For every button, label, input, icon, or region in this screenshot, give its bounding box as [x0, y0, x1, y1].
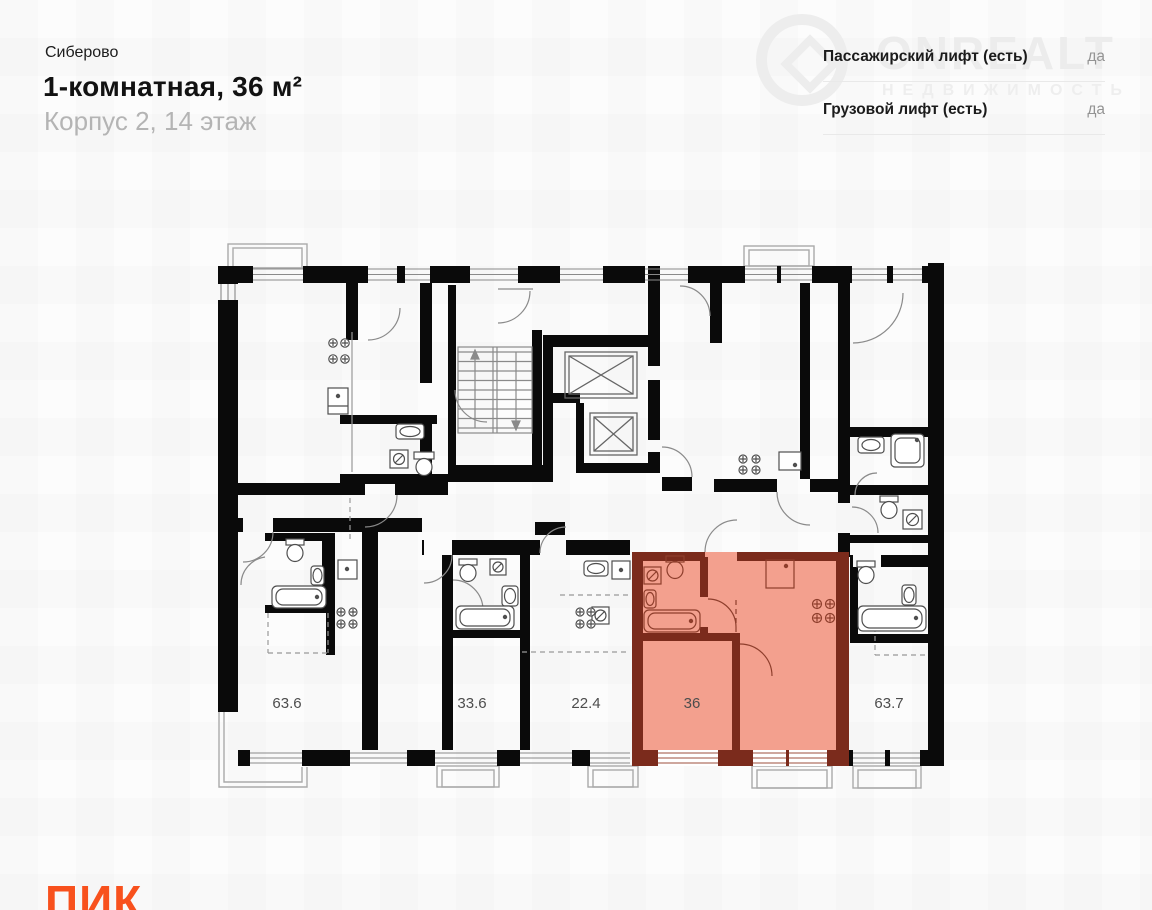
apartment-36-area[interactable]	[632, 552, 849, 766]
washing-machine-icon	[490, 559, 506, 575]
toilet-icon	[459, 559, 477, 582]
cargo-lift-value: да	[1087, 101, 1105, 119]
toilet-icon	[880, 496, 898, 519]
passenger-lift-label: Пассажирский лифт (есть)	[823, 48, 1028, 66]
sink-icon	[502, 586, 518, 606]
sink-icon	[311, 566, 324, 585]
stove-icon	[329, 339, 349, 363]
kitchen-sink-icon	[612, 561, 630, 579]
cargo-lift-row: Грузовой лифт (есть) да	[823, 101, 1105, 135]
highlighted-apartment[interactable]	[632, 552, 849, 766]
apartment-label: 22.4	[571, 695, 600, 712]
staircase	[458, 289, 533, 433]
bathtub-icon	[456, 606, 514, 629]
apartment-label: 33.6	[457, 695, 486, 712]
sink-icon	[858, 437, 884, 453]
elevator-shafts	[565, 352, 637, 455]
apartment-label-highlighted: 36	[684, 695, 701, 712]
floorplan-page: ONREALT НЕДВИЖИМОСТЬ Сиберово 1-комнатна…	[0, 0, 1152, 910]
kitchen-sink-icon	[779, 452, 801, 470]
sink-icon	[396, 424, 424, 439]
cargo-lift-label: Грузовой лифт (есть)	[823, 101, 987, 119]
washing-machine-icon	[390, 450, 408, 468]
bathtub-icon	[858, 606, 926, 631]
toilet-icon	[414, 452, 434, 476]
toilet-icon	[857, 561, 875, 584]
passenger-lift-row: Пассажирский лифт (есть) да	[823, 48, 1105, 82]
kitchen-sink-icon	[328, 388, 348, 414]
washing-machine-icon	[903, 510, 922, 529]
sink-icon	[584, 561, 608, 576]
sink-icon	[902, 585, 916, 605]
stove-icon	[739, 455, 760, 474]
bathtub-icon	[272, 586, 326, 608]
toilet-icon	[286, 539, 304, 562]
kitchen-sink-icon	[338, 560, 357, 579]
lift-info-panel: Пассажирский лифт (есть) да Грузовой лиф…	[823, 48, 1105, 154]
shower-icon	[891, 434, 924, 467]
passenger-lift-value: да	[1087, 48, 1105, 66]
apartment-label: 63.7	[874, 695, 903, 712]
apartment-label: 63.6	[272, 695, 301, 712]
stove-icon	[337, 608, 357, 628]
